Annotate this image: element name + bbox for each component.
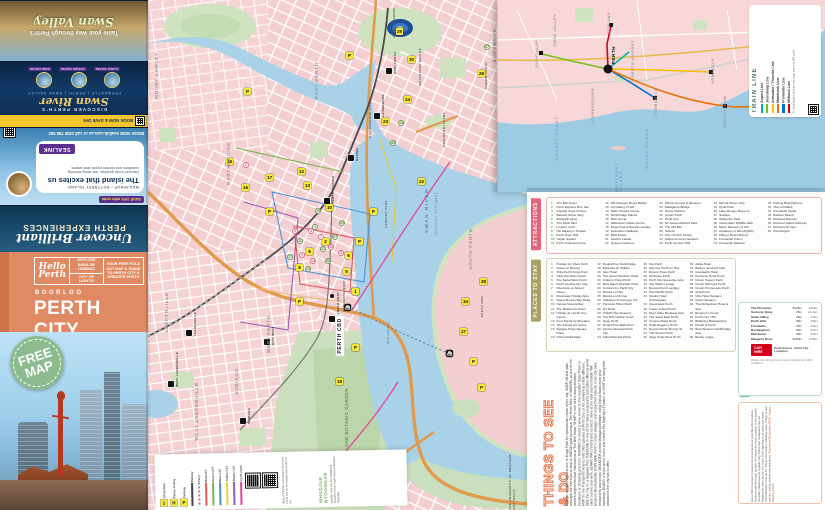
sealink-offer-badge: SAVE 15% with code [99,196,144,203]
ad-sealink-rottnest: SAVE 15% with code WADJEMUP / ROTTNEST I… [0,127,148,205]
free-map-badge: FREE MAP [3,332,71,397]
swan-valley-line: Taste your way through Perth's [0,29,148,35]
attraction-name: Peel Region [773,229,790,233]
stay-item: 33InterContinental Perth City [597,327,638,335]
cruise-photo-item: WINE CRUISE [28,67,52,88]
folded-map-sheet: Uncover Brilliant PERTH EXPERIENCES SAVE… [0,0,825,510]
stay-number: 52 [644,335,648,339]
train-line-title: TRAIN LINE [752,9,758,113]
places-to-stay-card: 1Holiday Inn West Perth 2Quest on Rheola… [546,258,736,352]
attractions-card: 1The Bell Tower 2Perth Explorer Bus Tour… [546,197,822,254]
legend-line-item: Cycle route [239,457,244,505]
legend-line-swatch [212,483,214,506]
train-line-row: Midland Line [787,9,791,113]
legend-line-label: Ferry [197,458,202,482]
legend-icon-item: Places to Stay H [170,458,178,506]
legend-line-swatch [233,482,235,505]
ack-whadjuk-nyoongar: WHADJUK NYOONGAR [317,455,328,503]
sealink-qr-code [4,127,15,137]
stay-number: 63 [690,302,694,310]
stay-name: Sage Hotel West Perth [649,335,680,339]
ads-column: Uncover Brilliant PERTH EXPERIENCES SAVE… [0,0,148,252]
cover-grid: Hello Perth EXPLORE INDULGE UNWIND! CITY… [34,257,144,285]
stay-item: 69Beatty Lodge [690,335,731,339]
things-to-see-do-body: HOP on an open top bus tour to Kings Par… [565,358,687,506]
legend-icon-label: Parking [181,468,186,498]
wirin-statue-head [57,391,65,400]
ack-text-2: people, who are the Traditional Owners o… [329,454,364,503]
travel-destination: Margaret River [751,337,789,341]
car-hire-logo: CAR HIRE [751,344,772,356]
attraction-item: 44Fremantle Markets [714,241,763,245]
stay-name: Riverview on Mount Street [557,286,593,294]
travel-time: 2h50m [789,337,802,341]
train-line-row: Fremantle Line [782,9,786,113]
legend-line-item: Blue CAT [218,457,223,505]
train-line-row: Joondalup Line [765,9,769,113]
cruise-photo-label: WINE CRUISE [28,67,52,71]
swan-valley-script: Swan Valley [0,15,148,29]
travel-times-card: The Pinnacles 2h25m 192km Sorrento Quay … [738,302,822,396]
travel-time-row: Margaret River 2h50m 270km [751,337,818,341]
cruise-photo-item: DINNER CRUISE [59,67,87,88]
sealink-logo: SEALINK [39,144,75,154]
legend-qr-code [246,473,260,487]
attractions-tab: ATTRACTIONS [531,198,541,250]
attraction-name: Queens Gardens [611,241,635,245]
train-line-swatch [788,104,790,113]
stay-item: 16Hotel Northbridge [551,335,592,339]
attraction-number: 11 [551,241,555,245]
stay-name: Adina Barrack Plaza [603,335,631,339]
cruise-photo-circle [104,72,120,88]
cruise-photo-label: LUNCH CRUISE [94,67,121,71]
info-panel: ATTRACTIONS 1The Bell Tower 2Perth Explo… [527,192,825,510]
cover-spine [0,252,9,332]
legend-line-item: Yellow CAT [225,457,230,505]
legend-icons: Attractions 1 Places to Stay H Parking P [160,458,188,507]
legend-line-label: Yellow CAT [225,457,230,481]
legend-line-item: Green CAT [211,457,216,505]
stay-name: Holiday Inn Perth City Centre [557,311,593,319]
cover-photo: FREE MAP [0,332,148,510]
legend-line-item: Ferry [197,458,202,506]
attraction-item: 33Perth Concert Hall [659,241,708,245]
legend-lines: Railway Ferry Red CAT Green CAT [190,457,244,506]
train-line-swatch [782,104,784,113]
legend-line-label: Red CAT [204,458,209,482]
uncover-script: Uncover Brilliant [0,232,148,244]
stay-name: Beatty Lodge [695,335,713,339]
publishers-note-card: Every effort has been made to be as accu… [738,402,822,504]
stay-item: 43Quality Hotel Ambassador [644,294,685,302]
tagline-explore: EXPLORE INDULGE UNWIND! [70,257,102,273]
stay-name: Hotel Northbridge [557,335,581,339]
publishers-note-body: Every effort has been made to be as accu… [751,406,817,502]
quokka-photo [6,171,32,197]
attraction-item: 11Perth Cultural Centre [551,241,600,245]
stay-item: 15Rydges Kings Square Hotel [551,327,592,335]
sealink-card: WADJEMUP / ROTTNEST ISLAND The island th… [36,141,144,193]
stay-number: 7 [551,286,555,294]
legend-line-label: Blue CAT [218,457,223,481]
legend-marker-icon: 1 [160,499,167,506]
sealink-body: Discover iconic quokkas, ride along stun… [67,166,139,174]
building-silhouette [104,372,120,482]
sealink-cta: BOOK NOW sealink.com.au or call 1300 786… [49,131,144,136]
stay-item: 7Riverview on Mount Street [551,286,592,294]
stay-item: 52Sage Hotel West Perth [644,335,685,339]
car-hire-block: CAR HIRE Perth Airport · Perth City · Lo… [739,342,821,358]
ack-text-1: HELLO PERTH is located in the heart of t… [281,455,316,504]
train-line-name: Armadale / Thornlie Line [771,61,775,103]
train-line-rows: Airport Line Joondalup Line Armadale / T… [760,9,791,113]
cover-panel: Hello Perth EXPLORE INDULGE UNWIND! CITY… [0,252,148,332]
attraction-item: 22Queens Gardens [605,241,654,245]
stay-item: 34Adina Barrack Plaza [597,335,638,339]
train-line-qr-code [809,105,818,114]
stay-name: The Richardson Hotel & Spa [695,302,731,310]
cruise-offer-text: BOOK NOW & SAVE 15% [83,119,133,124]
train-line-name: Mandurah Line [776,77,780,103]
train-line-row: Mandurah Line [776,9,780,113]
legend-marker-icon: P [180,499,187,506]
stay-number: 12 [551,311,555,319]
sealink-headline: The island that excites us [41,176,139,184]
legend-line-label: Green CAT [211,457,216,481]
travel-distance: 270km [802,337,818,341]
hello-perth-logo: Hello Perth [35,258,70,284]
legend-marker-icon: H [170,499,177,506]
attraction-number: 52 [768,229,772,233]
train-line-swatch [761,104,763,113]
cruise-photo-circle [36,72,52,88]
stay-item: 63The Richardson Hotel & Spa [690,302,731,310]
legend-line-swatch [198,483,200,506]
travel-times-note: Please note driving times may be affecte… [739,358,821,365]
legend-line-swatch [226,482,228,505]
stay-number: 69 [690,335,694,339]
train-line-legend-content: TRAIN LINE Airport Line Joondalup Line A… [752,9,818,113]
legend-line-swatch [240,482,242,505]
legend-icon-label: Places to Stay [171,468,176,498]
stay-number: 16 [551,335,555,339]
cruise-qr-code [136,117,144,125]
cruise-photo-item: LUNCH CRUISE [94,67,121,88]
legend-qr-code-2 [263,473,277,487]
stay-name: Quality Hotel Ambassador [649,294,685,302]
perth-city-map: PERTH STATION McIVER CLAISEBROOK EAST PE… [148,0,530,510]
cruise-photo-circle [71,72,87,88]
attraction-name: Perth Cultural Centre [557,241,586,245]
attraction-number: 44 [714,241,718,245]
stay-name: Rydges Kings Square Hotel [557,327,593,335]
train-line-legend: TRAIN LINE Airport Line Joondalup Line A… [749,5,821,117]
train-line-row: Airport Line [760,9,764,113]
ad-swan-valley: Taste your way through Perth's Swan Vall… [0,0,148,61]
train-line-row: Armadale / Thornlie Line [771,9,775,113]
legend-line-swatch [219,483,221,506]
attraction-number: 33 [659,241,663,245]
cruise-offer-strip: BOOK NOW & SAVE 15% [0,115,148,127]
ad-swan-river-cruise: BOOK NOW & SAVE 15% DISCOVER PERTH'S Swa… [0,61,148,127]
attraction-name: Perth Concert Hall [665,241,690,245]
stay-item: 12Holiday Inn Perth City Centre [551,311,592,319]
tagline-city-of-lights: CITY OF LIGHTS! [70,274,102,285]
cruise-title: Swan River [0,96,148,107]
legend-icon-item: Parking P [180,458,188,506]
train-line-name: Fremantle Line [782,77,786,103]
cruise-routes: FREMANTLE | PERTH | SWAN VALLEY [0,91,148,95]
acknowledgement-of-country: HELLO PERTH is located in the heart of t… [281,454,364,504]
legend-line-item: Red CAT [204,458,209,506]
attractions-list: 1The Bell Tower 2Perth Explorer Bus Tour… [547,198,821,249]
legend-line-item: Purple CAT [232,457,237,505]
train-line-name: Joondalup Line [765,76,769,103]
boorloo-label: BOORLOO [35,290,84,296]
stay-number: 68 [690,327,694,335]
attraction-item: 52Peel Region [768,229,817,233]
cruise-photos: LUNCH CRUISE DINNER CRUISE WINE CRUISE [0,67,148,88]
cruise-photo-label: DINNER CRUISE [59,67,87,71]
legend-icon-item: Attractions 1 [160,458,168,506]
legend-line-item: Railway [190,458,195,506]
attraction-number: 22 [605,241,609,245]
stay-number: 15 [551,327,555,335]
stay-number: 34 [597,335,601,339]
places-to-stay-list: 1Holiday Inn West Perth 2Quest on Rheola… [547,259,735,342]
car-hire-locations: Perth Airport · Perth City · Locations [774,347,818,354]
wirin-statue [58,398,63,476]
train-line-swatch [777,104,779,113]
places-to-stay-tab: PLACES TO STAY [531,260,541,322]
stay-name: InterContinental Perth City [603,327,639,335]
train-line-swatch [766,104,768,113]
stay-name: Best Western Northbridge Apts [695,327,731,335]
map-legend-strip: Attractions 1 Places to Stay H Parking P… [154,449,407,510]
inset-perth-hub-label: PERTH [611,46,616,64]
legend-line-label: Purple CAT [232,457,237,481]
tagline-free-map: YOUR FREE FOLD OUT MAP & GUIDE TO PERTH … [104,258,143,284]
stay-item: 68Best Western Northbridge Apts [690,327,731,335]
legend-line-label: Railway [190,458,195,482]
sealink-destination: WADJEMUP / ROTTNEST ISLAND [41,185,139,189]
street-crowd [0,480,148,510]
legend-line-label: Cycle route [239,457,244,481]
stay-number: 33 [597,327,601,335]
legend-line-swatch [191,483,193,506]
train-line-name: Midland Line [787,81,791,103]
train-line-swatch [772,104,774,113]
building-silhouette [80,390,102,482]
stay-number: 43 [644,294,648,302]
legend-line-swatch [205,483,207,506]
train-line-name: Airport Line [760,83,764,103]
building-silhouette [122,404,148,482]
legend-icon-label: Attractions [161,468,166,498]
ad-uncover-perth: Uncover Brilliant PERTH EXPERIENCES [0,205,148,252]
attraction-name: Fremantle Markets [719,241,745,245]
cover-taglines: EXPLORE INDULGE UNWIND! CITY OF LIGHTS! [70,258,103,284]
map-base [148,0,530,510]
train-line-note: To download a full train line map scan t… [792,9,806,113]
greater-perth-inset-map: PERTH JOONDALUP SWAN VALLEY MIDLAND PERT… [497,0,825,192]
travel-times-rows: The Pinnacles 2h25m 192km Sorrento Quay … [739,303,821,342]
